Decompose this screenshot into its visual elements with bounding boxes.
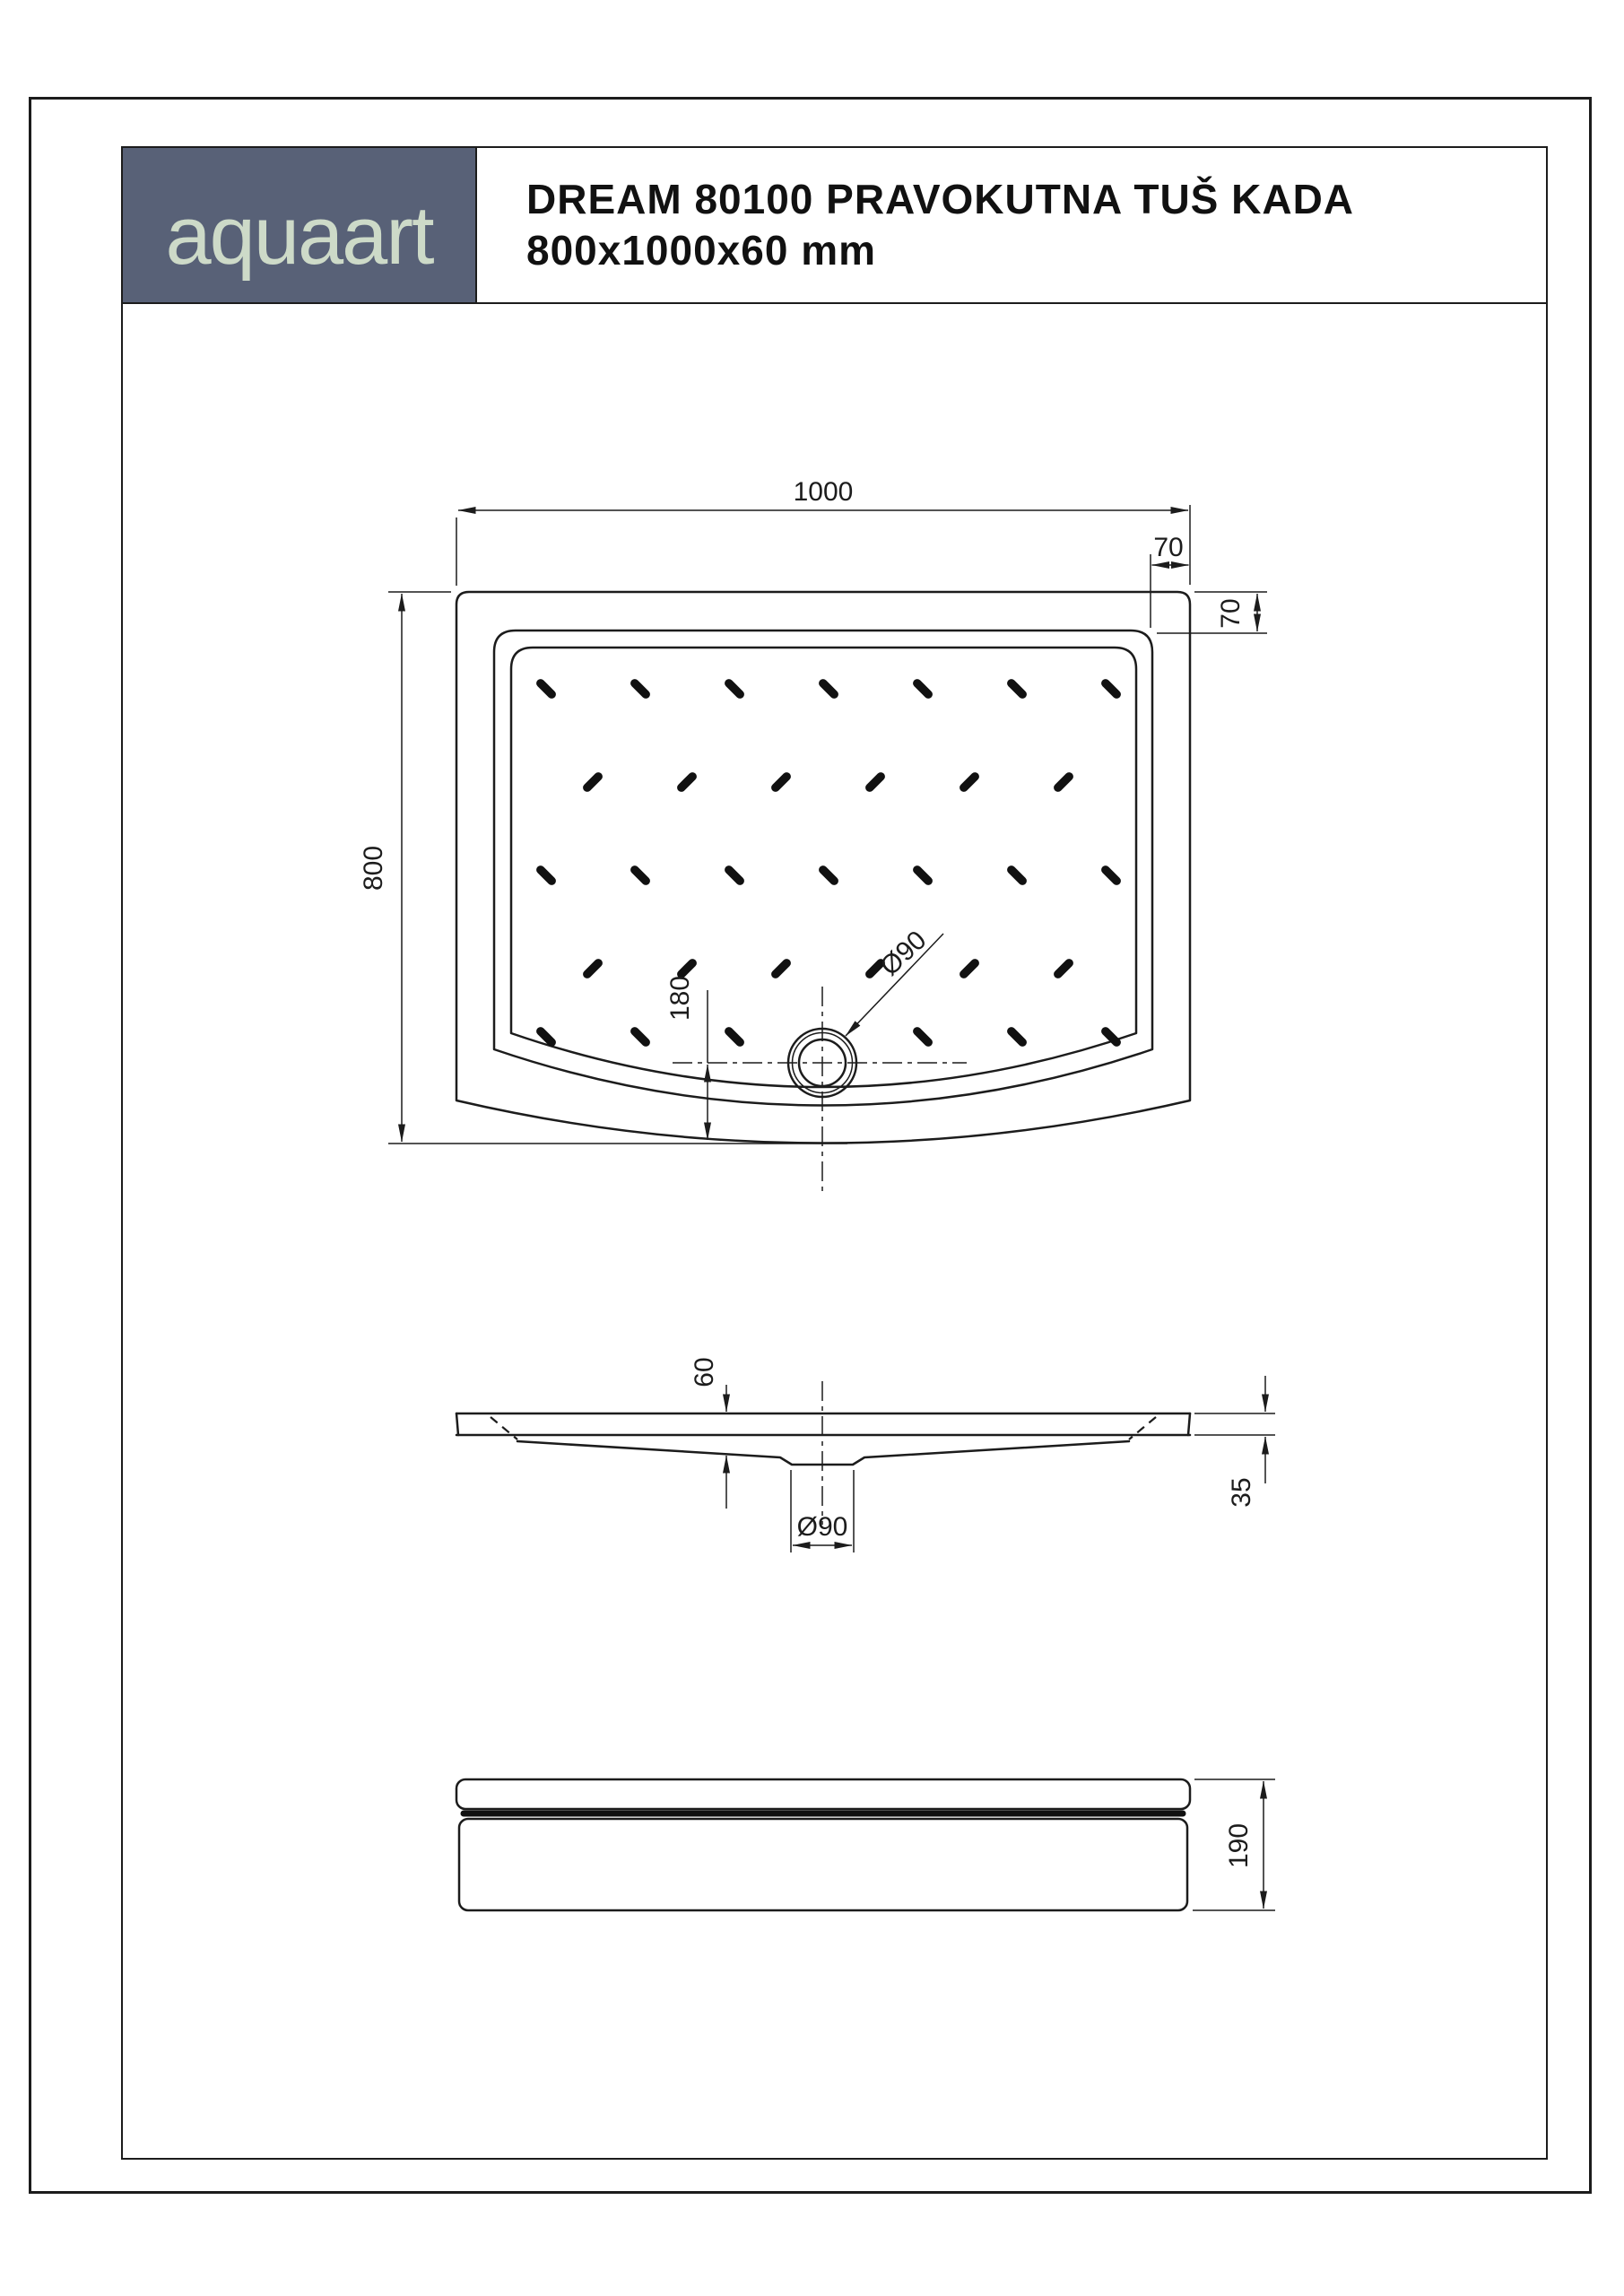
drain-diameter-label: Ø90 [875,926,933,982]
anti-slip-dot [958,770,981,794]
anti-slip-dot [534,677,558,700]
dim-depth-60: 60 [690,1357,726,1509]
anti-slip-pattern [534,677,1123,1048]
anti-slip-dot [723,677,746,700]
dim-width-1000: 1000 [456,477,1190,586]
anti-slip-dot [769,957,793,980]
dim-front-height-label: 190 [1224,1823,1254,1868]
dim-edge-label: 35 [1227,1477,1256,1507]
dim-edge-35: 35 [1194,1376,1275,1508]
anti-slip-dot [911,677,934,700]
drain-top-view: Ø90 [673,926,967,1195]
basin-floor-section [517,1441,1129,1465]
anti-slip-dot [817,677,840,700]
dim-depth-label: 60 [690,1357,719,1387]
anti-slip-dot [534,864,558,887]
dim-height-label: 800 [359,846,388,891]
anti-slip-dot [629,677,652,700]
side-profile-right-edge [1188,1413,1190,1435]
anti-slip-dot [1005,1025,1029,1048]
dim-rim-top-70: 70 [1151,533,1189,628]
anti-slip-dot [581,770,604,794]
dim-drain-diameter-label: Ø90 [797,1512,848,1542]
front-view: 190 [456,1779,1275,1910]
anti-slip-dot [581,957,604,980]
anti-slip-dot [629,864,652,887]
anti-slip-dot [911,864,934,887]
anti-slip-dot [1099,677,1123,700]
dim-drain-offset-180: 180 [665,976,708,1140]
anti-slip-dot [1005,864,1029,887]
page: { "header": { "logo_text": "aquaart", "l… [0,0,1624,2296]
technical-drawing: Ø90 1000 800 70 70 [0,0,1624,2296]
anti-slip-dot [723,864,746,887]
anti-slip-dot [1005,677,1029,700]
anti-slip-dot [958,957,981,980]
anti-slip-dot [1099,864,1123,887]
top-view: Ø90 1000 800 70 70 [359,477,1267,1195]
anti-slip-dot [1052,957,1075,980]
anti-slip-dot [675,770,699,794]
side-view: 60 35 Ø90 [456,1357,1275,1552]
anti-slip-dot [723,1025,746,1048]
side-profile-left-edge [456,1413,458,1435]
anti-slip-dot [864,770,887,794]
anti-slip-dot [629,1025,652,1048]
dim-rim-top-label: 70 [1153,533,1183,562]
anti-slip-dot [911,1025,934,1048]
dim-rim-right-70: 70 [1157,592,1267,633]
anti-slip-dot [817,864,840,887]
dim-drain-offset-label: 180 [665,976,695,1021]
front-rim-band [456,1779,1190,1809]
dim-width-label: 1000 [794,477,854,507]
front-panel [459,1819,1187,1910]
dim-rim-right-label: 70 [1216,598,1246,628]
dim-front-height-190: 190 [1193,1779,1275,1910]
anti-slip-dot [769,770,793,794]
anti-slip-dot [1052,770,1075,794]
